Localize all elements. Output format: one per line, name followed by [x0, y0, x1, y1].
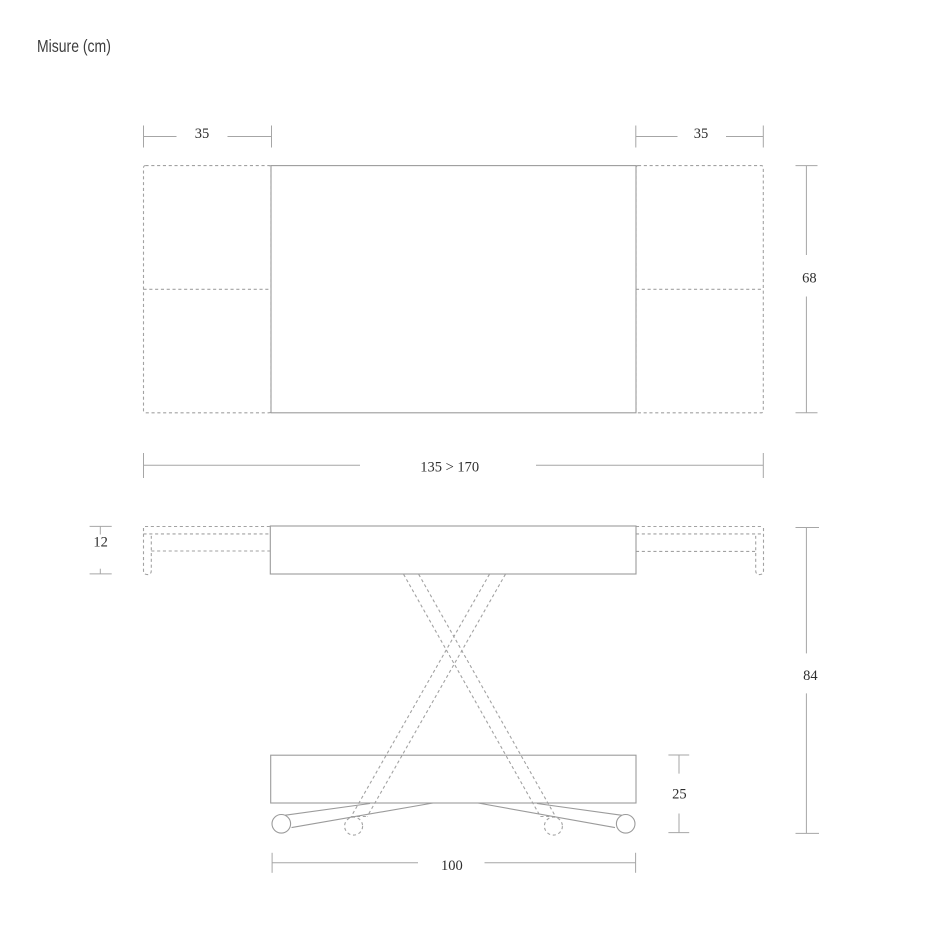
svg-text:12: 12 — [93, 535, 108, 551]
svg-text:25: 25 — [672, 787, 687, 803]
svg-text:135 > 170: 135 > 170 — [420, 459, 479, 475]
svg-text:84: 84 — [803, 668, 818, 684]
svg-text:35: 35 — [195, 126, 210, 142]
svg-text:35: 35 — [694, 126, 709, 142]
svg-text:100: 100 — [441, 858, 463, 874]
svg-text:68: 68 — [802, 270, 817, 286]
